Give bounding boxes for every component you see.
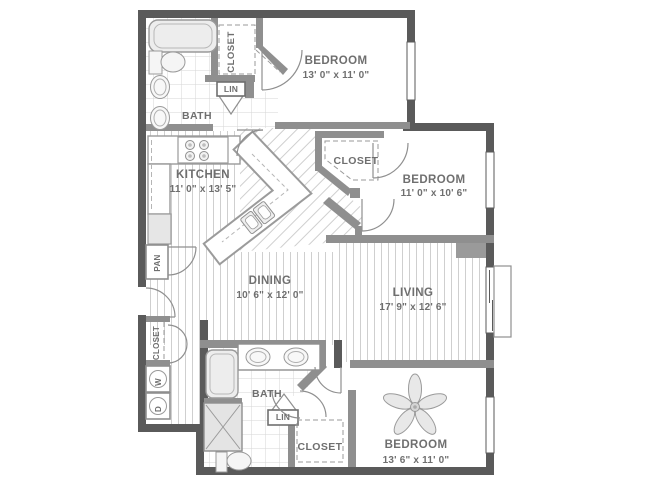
dryer-label: D: [154, 406, 163, 412]
toilet-bottom: [216, 452, 251, 472]
washer-label: W: [154, 378, 163, 386]
closet-right-label: CLOSET: [334, 155, 379, 167]
linen-top-label: LIN: [224, 84, 238, 94]
pantry-label: PAN: [153, 254, 162, 271]
closet-hall-label: CLOSET: [152, 326, 161, 360]
kitchen-label: KITCHEN: [176, 169, 230, 181]
bath-top-label: BATH: [182, 110, 212, 122]
closet-top-floor: [218, 18, 256, 79]
hall-left-floor: [168, 280, 204, 425]
bedroom-right-dims: 11' 0" x 10' 6": [401, 188, 468, 199]
living-label: LIVING: [393, 287, 434, 299]
bedroom-bottom-window: [486, 397, 494, 453]
hall-top-floor: [208, 92, 278, 132]
bedroom-bottom-dims: 13' 6" x 11' 0": [383, 455, 450, 466]
bedroom-top-dims: 13' 0" x 11' 0": [303, 70, 370, 81]
closet-bottom-door: [300, 391, 326, 417]
bedroom-right-window: [486, 152, 494, 208]
bath-bottom-label: BATH: [252, 388, 282, 400]
bedroom-top-window: [407, 42, 415, 100]
dining-label: DINING: [249, 275, 292, 287]
closet-top-label: CLOSET: [226, 31, 237, 73]
living-dims: 17' 9" x 12' 6": [379, 302, 446, 313]
shower: [204, 403, 242, 451]
bedroom-bottom-label: BEDROOM: [385, 439, 448, 451]
bedroom-right-door: [362, 199, 394, 231]
floor-plan-drawing: BEDROOM 13' 0" x 11' 0" BEDROOM 11' 0" x…: [0, 0, 650, 490]
patio-landing: [494, 266, 511, 337]
toilet-top: [149, 51, 185, 74]
ceiling-fan-icon: [382, 374, 449, 438]
vanity-bottom: [238, 344, 320, 370]
living-floor: [334, 240, 490, 362]
stove: [178, 137, 228, 163]
dining-dims: 10' 6" x 12' 0": [236, 290, 303, 301]
refrigerator: [148, 214, 171, 244]
closet-bottom-label: CLOSET: [298, 441, 343, 453]
kitchen-dims: 11' 0" x 13' 5": [170, 184, 237, 195]
bedroom-right-label: BEDROOM: [403, 174, 466, 186]
bedroom-top-label: BEDROOM: [305, 55, 368, 67]
floor-plan-page: BEDROOM 13' 0" x 11' 0" BEDROOM 11' 0" x…: [0, 0, 650, 490]
linen-bottom-label: LIN: [276, 412, 290, 422]
